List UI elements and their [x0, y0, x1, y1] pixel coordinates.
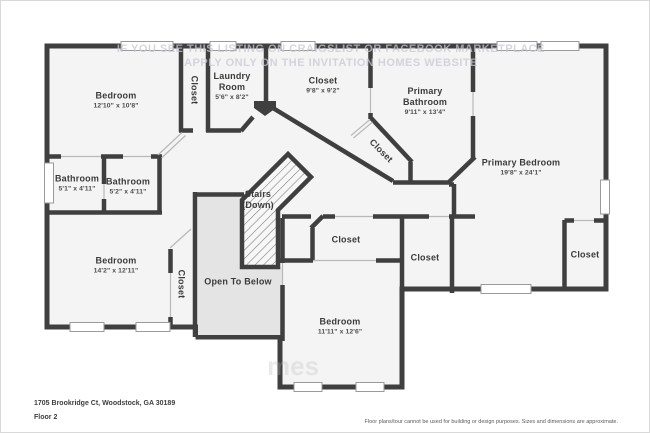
- footer-address: 1705 Brookridge Ct, Woodstock, GA 30189: [34, 400, 175, 407]
- room-label-closet-bedroom-2: Closet: [176, 270, 187, 299]
- room-label-closet-hall: Closet: [189, 76, 200, 105]
- room-label-closet-primary-2: Closet: [571, 250, 600, 261]
- room-name: Closet: [306, 76, 339, 87]
- room-name: Bedroom: [93, 91, 138, 102]
- room-dimensions: 5'2" x 4'11": [106, 188, 150, 195]
- footer-disclaimer: Floor plans/tour cannot be used for buil…: [365, 419, 618, 425]
- room-name: Closet: [367, 137, 395, 165]
- room-dimensions: 9'11" x 13'4": [394, 109, 456, 116]
- room-label-bedroom-1: Bedroom12'10" x 10'8": [93, 91, 138, 110]
- room-name-sub: (Down): [242, 200, 274, 211]
- room-label-closet-bedroom-3: Closet: [332, 235, 361, 246]
- room-name: Closet: [411, 253, 440, 264]
- room-label-bathroom-2: Bathroom5'2" x 4'11": [106, 177, 150, 196]
- room-dimensions: 19'8" x 24'1": [482, 169, 561, 176]
- footer-floor-label: Floor 2: [34, 414, 57, 421]
- room-name: Closet: [176, 270, 187, 299]
- room-name: Stairs: [242, 189, 274, 200]
- room-label-primary-bedroom: Primary Bedroom19'8" x 24'1": [482, 158, 561, 177]
- room-label-open-to-below: Open To Below: [204, 277, 271, 288]
- room-label-bedroom-2: Bedroom14'2" x 12'11": [94, 256, 139, 275]
- room-label-stairs: Stairs(Down): [242, 189, 274, 211]
- room-name: Closet: [571, 250, 600, 261]
- room-name: Open To Below: [204, 277, 271, 288]
- room-label-closet-hall-2: Closet: [411, 253, 440, 264]
- room-dimensions: 12'10" x 10'8": [93, 102, 138, 109]
- room-name: Primary Bathroom: [394, 86, 456, 108]
- room-label-closet-primary-walkin: Closet9'8" x 9'2": [306, 76, 339, 95]
- room-dimensions: 5'6" x 8'2": [206, 94, 258, 101]
- room-name: Bathroom: [106, 177, 150, 188]
- room-name: Bedroom: [318, 317, 362, 328]
- room-dimensions: 14'2" x 12'11": [94, 267, 139, 274]
- room-label-laundry-room: Laundry Room5'6" x 8'2": [206, 71, 258, 101]
- room-labels-layer: Bedroom12'10" x 10'8"ClosetLaundry Room5…: [1, 1, 649, 432]
- room-name: Laundry Room: [206, 71, 258, 93]
- room-name: Closet: [332, 235, 361, 246]
- room-dimensions: 9'8" x 9'2": [306, 87, 339, 94]
- room-label-bathroom-1: Bathroom5'1" x 4'11": [55, 174, 99, 193]
- floorplan-page: IF YOU SEE THIS LISTING ON CRAIGSLIST OR…: [0, 0, 650, 433]
- room-label-bedroom-3: Bedroom11'11" x 12'6": [318, 317, 362, 336]
- room-label-closet-diagonal: Closet: [367, 137, 395, 165]
- room-label-primary-bathroom: Primary Bathroom9'11" x 13'4": [394, 86, 456, 116]
- room-name: Closet: [189, 76, 200, 105]
- room-name: Bedroom: [94, 256, 139, 267]
- room-name: Bathroom: [55, 174, 99, 185]
- room-name: Primary Bedroom: [482, 158, 561, 169]
- room-dimensions: 11'11" x 12'6": [318, 328, 362, 335]
- room-dimensions: 5'1" x 4'11": [55, 185, 99, 192]
